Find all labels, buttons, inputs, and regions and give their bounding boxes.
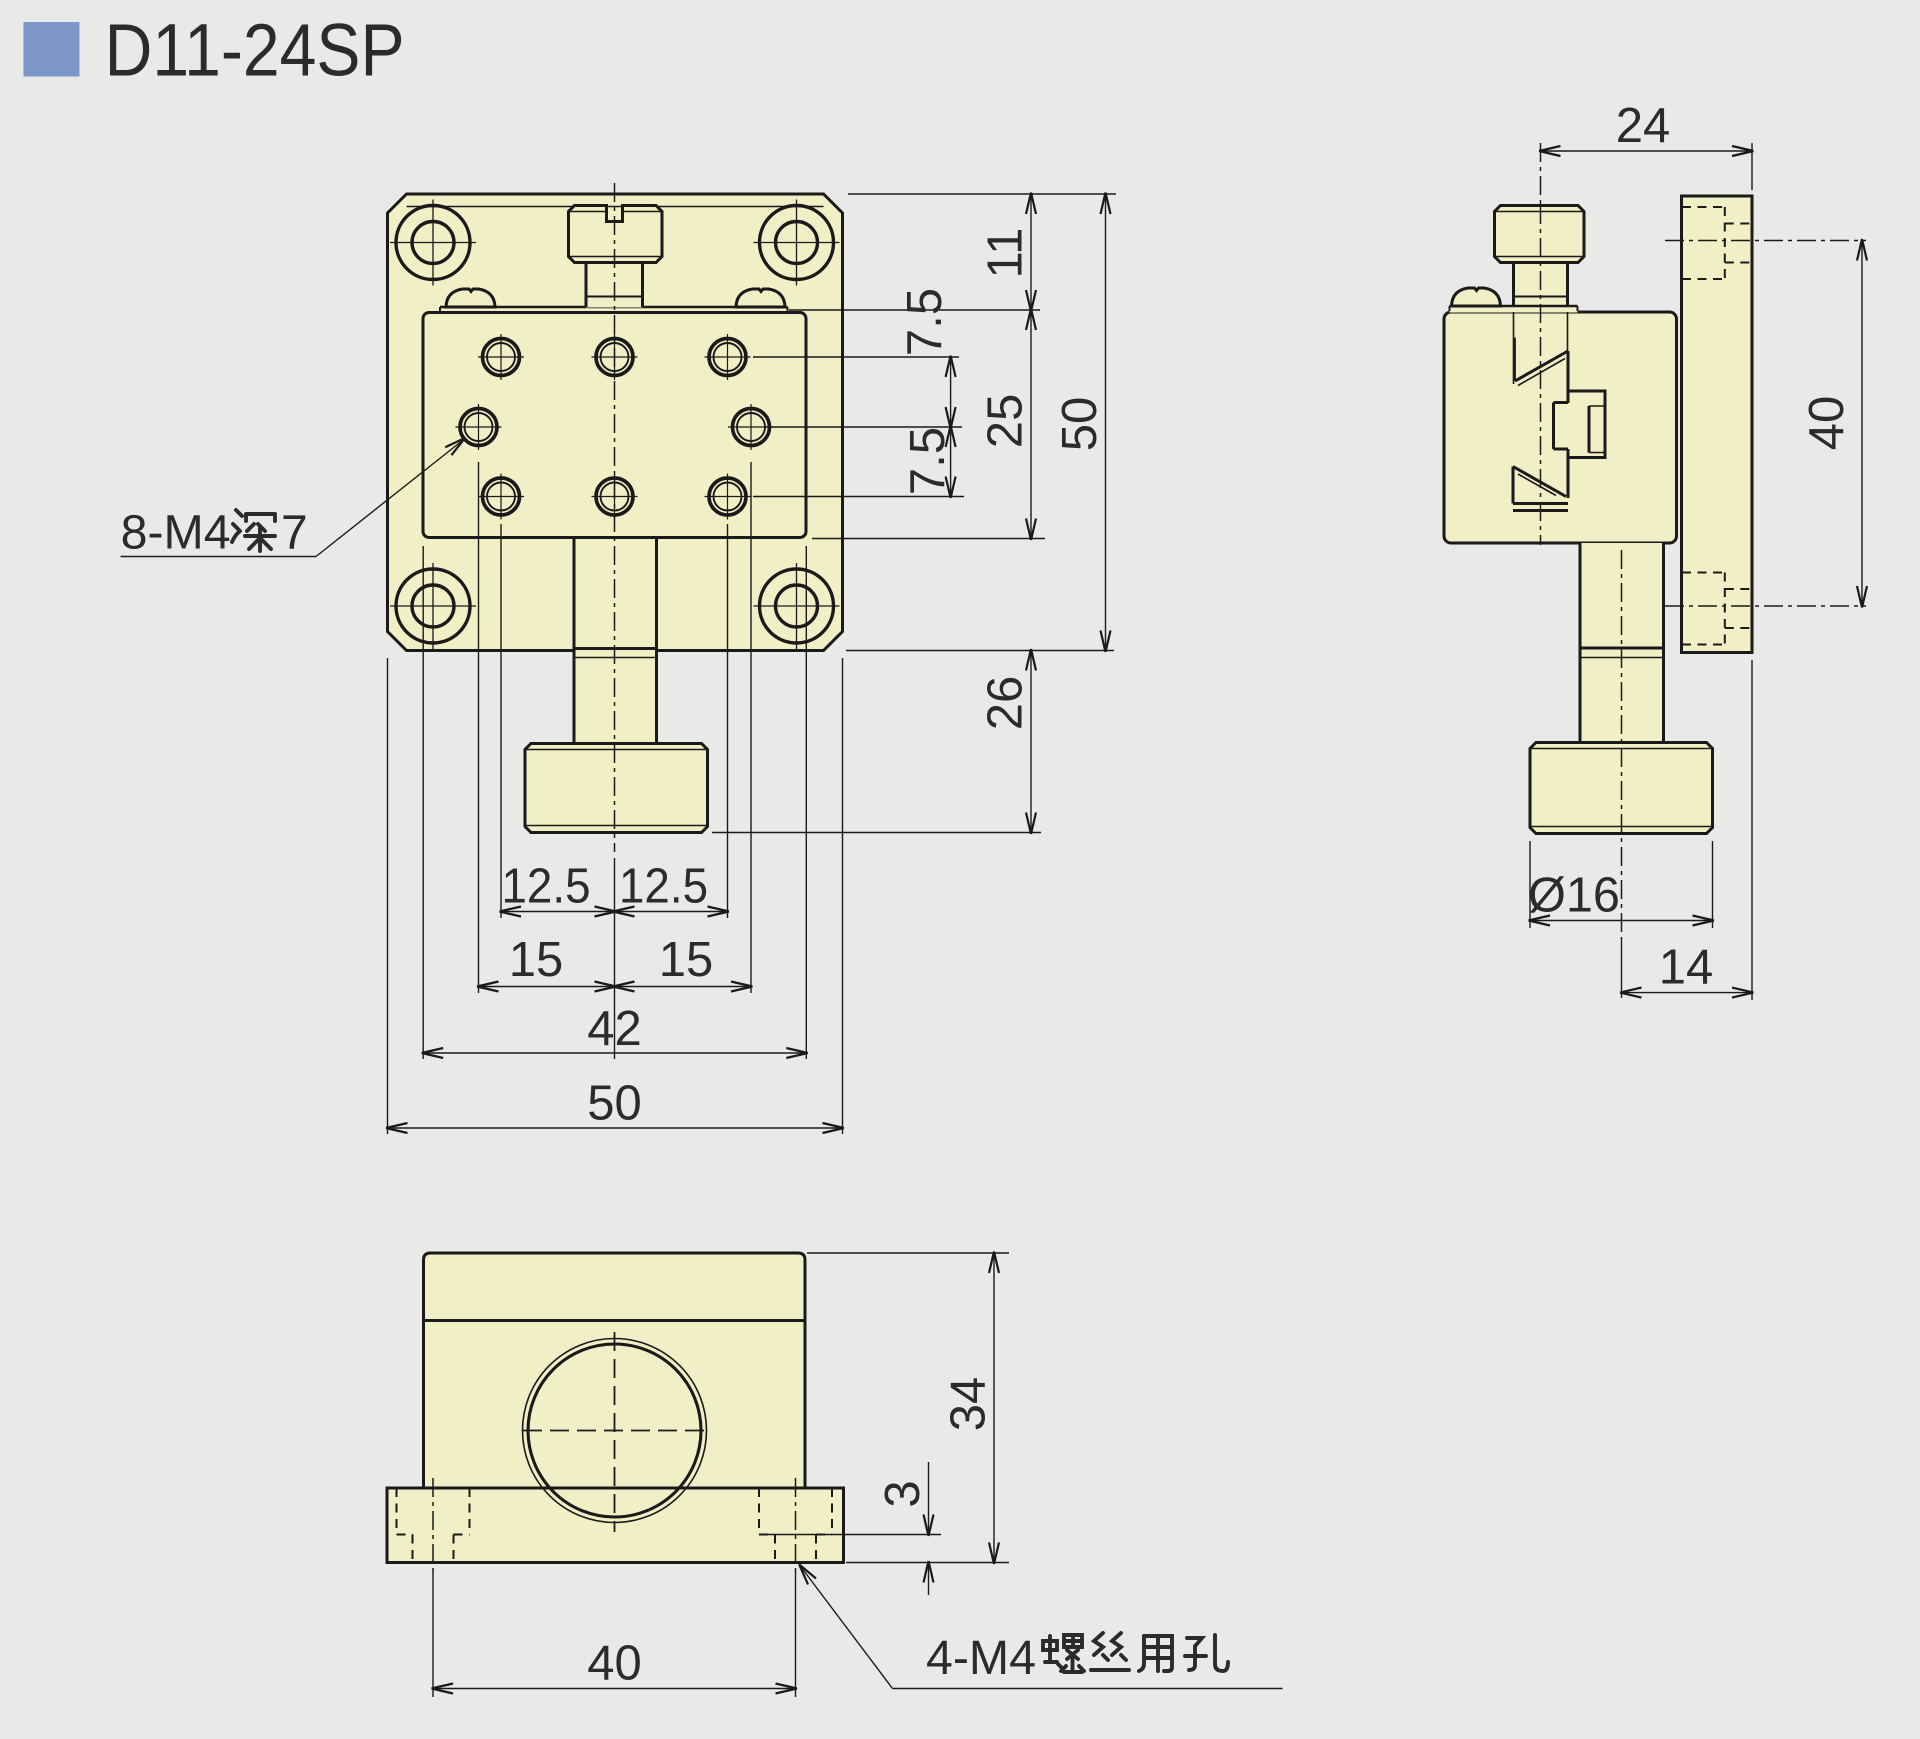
svg-text:14: 14 [1659,941,1714,995]
svg-text:40: 40 [1800,396,1854,451]
svg-text:26: 26 [979,676,1033,731]
svg-text:34: 34 [942,1377,996,1432]
svg-text:15: 15 [509,933,564,987]
svg-text:7.5: 7.5 [898,288,952,356]
svg-text:Ø16: Ø16 [1528,869,1620,923]
svg-text:50: 50 [1053,397,1107,452]
svg-text:D11-24SP: D11-24SP [105,9,405,92]
svg-text:7.5: 7.5 [901,427,955,495]
svg-text:42: 42 [587,1002,642,1056]
svg-text:24: 24 [1616,99,1671,153]
svg-text:25: 25 [979,394,1033,449]
svg-text:11: 11 [979,228,1033,279]
svg-text:8-M4: 8-M4 [121,507,231,560]
svg-text:50: 50 [587,1077,642,1131]
svg-text:12.5: 12.5 [619,860,708,914]
svg-text:4-M4: 4-M4 [926,1632,1036,1685]
svg-text:7: 7 [281,507,308,560]
svg-text:3: 3 [876,1480,930,1507]
svg-text:40: 40 [587,1637,642,1691]
svg-text:15: 15 [659,933,714,987]
svg-text:12.5: 12.5 [502,860,591,914]
